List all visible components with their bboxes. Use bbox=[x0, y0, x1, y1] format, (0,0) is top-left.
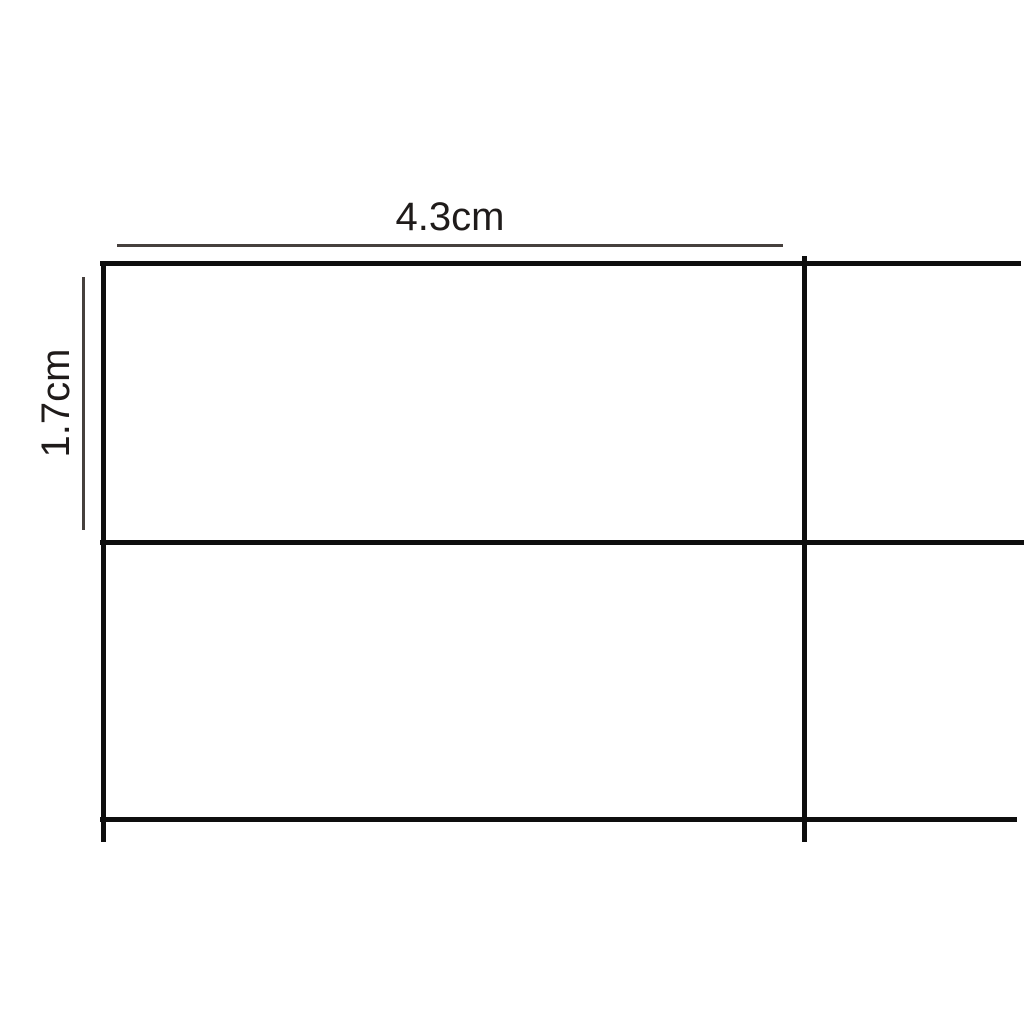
height-dimension-label: 1.7cm bbox=[36, 349, 76, 458]
grid-line-center-vertical bbox=[802, 256, 807, 842]
grid-line-top bbox=[100, 261, 1021, 266]
dimension-diagram: 4.3cm 1.7cm bbox=[0, 0, 1024, 1024]
grid-line-middle bbox=[100, 540, 1024, 545]
grid-line-bottom bbox=[100, 817, 1017, 822]
width-dimension-label: 4.3cm bbox=[396, 197, 505, 237]
grid-line-left-vertical bbox=[101, 261, 106, 842]
width-dimension-line bbox=[117, 244, 783, 247]
height-dimension-line bbox=[82, 277, 85, 530]
